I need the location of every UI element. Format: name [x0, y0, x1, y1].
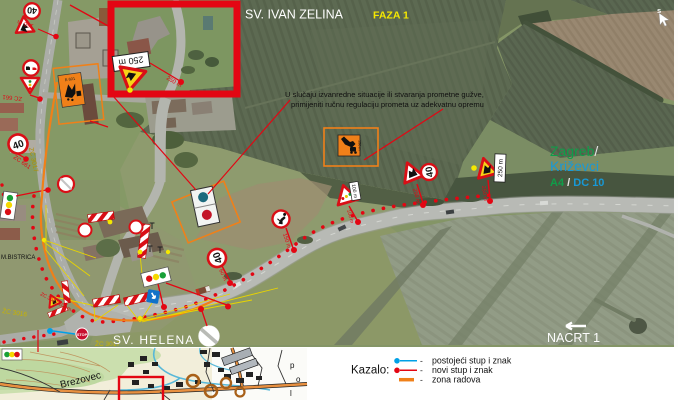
svg-text:Križevci: Križevci: [550, 158, 599, 174]
svg-text:U slučaju izvanredne situacije: U slučaju izvanredne situacije ili stvar…: [285, 90, 484, 99]
svg-text:STOP: STOP: [77, 333, 88, 337]
svg-text:-: -: [420, 365, 423, 375]
svg-text:l: l: [290, 389, 292, 398]
svg-text:novi stup i znak: novi stup i znak: [432, 365, 493, 375]
svg-text:-: -: [420, 355, 423, 365]
svg-text:250 m: 250 m: [497, 159, 505, 177]
svg-text:postojeći stup i znak: postojeći stup i znak: [432, 356, 512, 366]
svg-text:-: -: [420, 374, 423, 384]
svg-text:40: 40: [27, 5, 38, 16]
svg-text:SV. IVAN ZELINA: SV. IVAN ZELINA: [245, 8, 344, 22]
svg-text:o: o: [296, 375, 301, 384]
svg-text:NACRT 1: NACRT 1: [547, 331, 600, 345]
svg-text:150 m: 150 m: [358, 140, 362, 151]
svg-text:A4 / DC 10: A4 / DC 10: [550, 177, 604, 189]
svg-text:primijeniti ručnu regulaciju p: primijeniti ručnu regulaciju prometa uz …: [291, 100, 484, 109]
svg-text:zona radova: zona radova: [432, 375, 481, 385]
svg-text:Kazalo:: Kazalo:: [351, 365, 389, 377]
svg-text:Zagreb/: Zagreb/: [550, 143, 598, 159]
svg-text:40: 40: [424, 166, 437, 178]
svg-text:p: p: [290, 361, 295, 370]
svg-text:SV. HELENA: SV. HELENA: [113, 333, 195, 347]
svg-text:FAZA 1: FAZA 1: [373, 10, 409, 22]
svg-text:M.BISTRICA: M.BISTRICA: [1, 255, 35, 261]
